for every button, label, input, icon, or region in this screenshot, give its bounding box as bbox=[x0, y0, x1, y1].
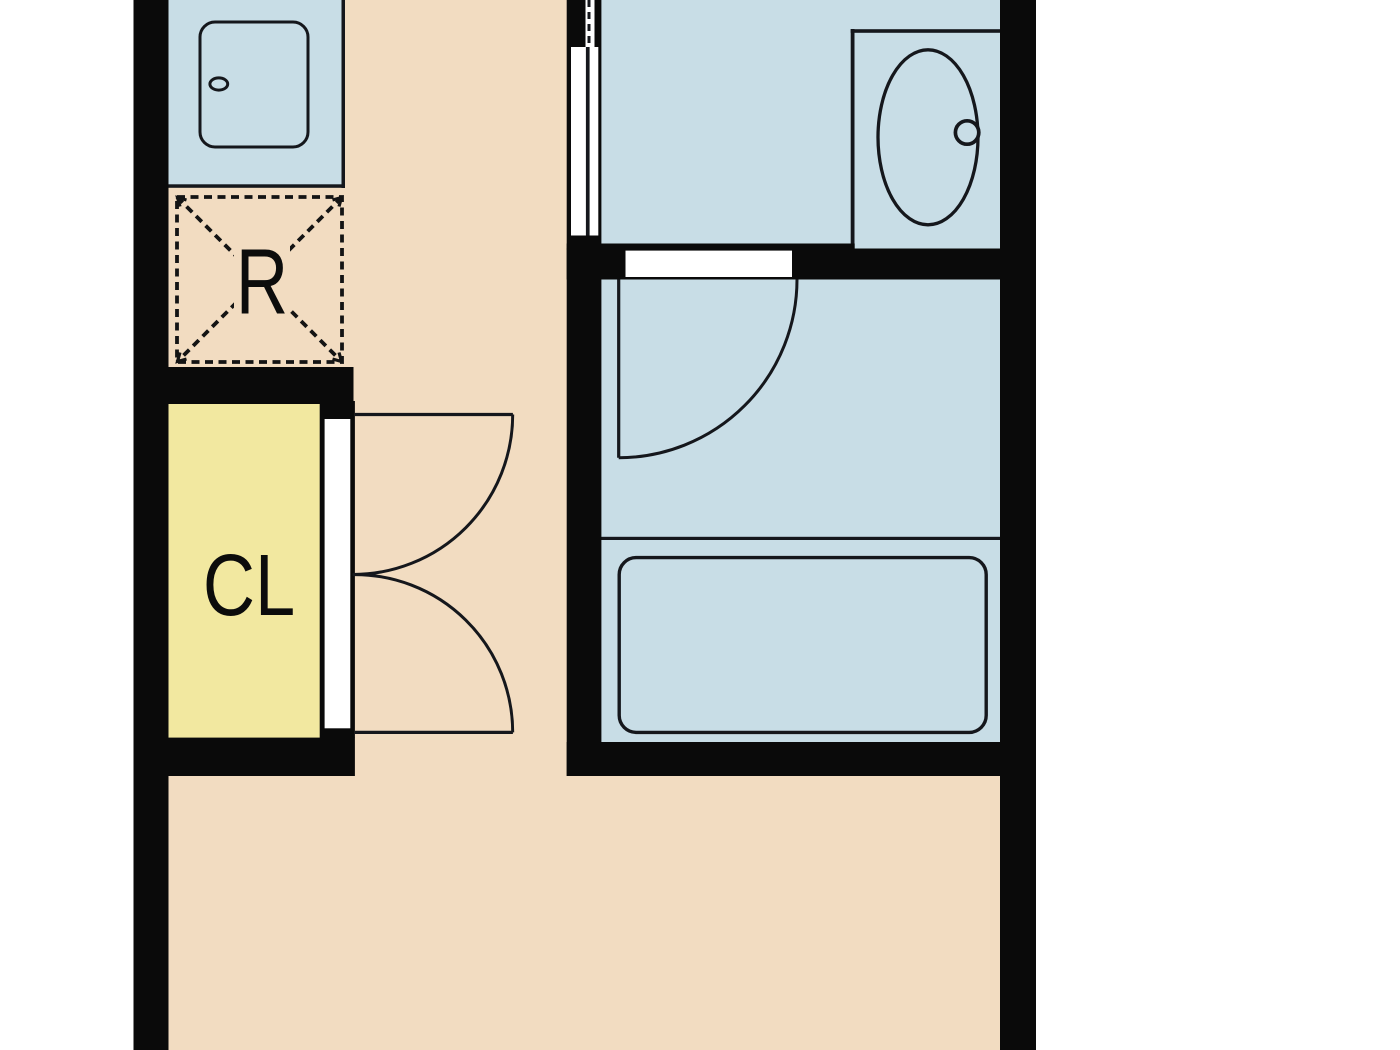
svg-text:CL: CL bbox=[203, 537, 295, 634]
svg-text:R: R bbox=[236, 230, 289, 334]
